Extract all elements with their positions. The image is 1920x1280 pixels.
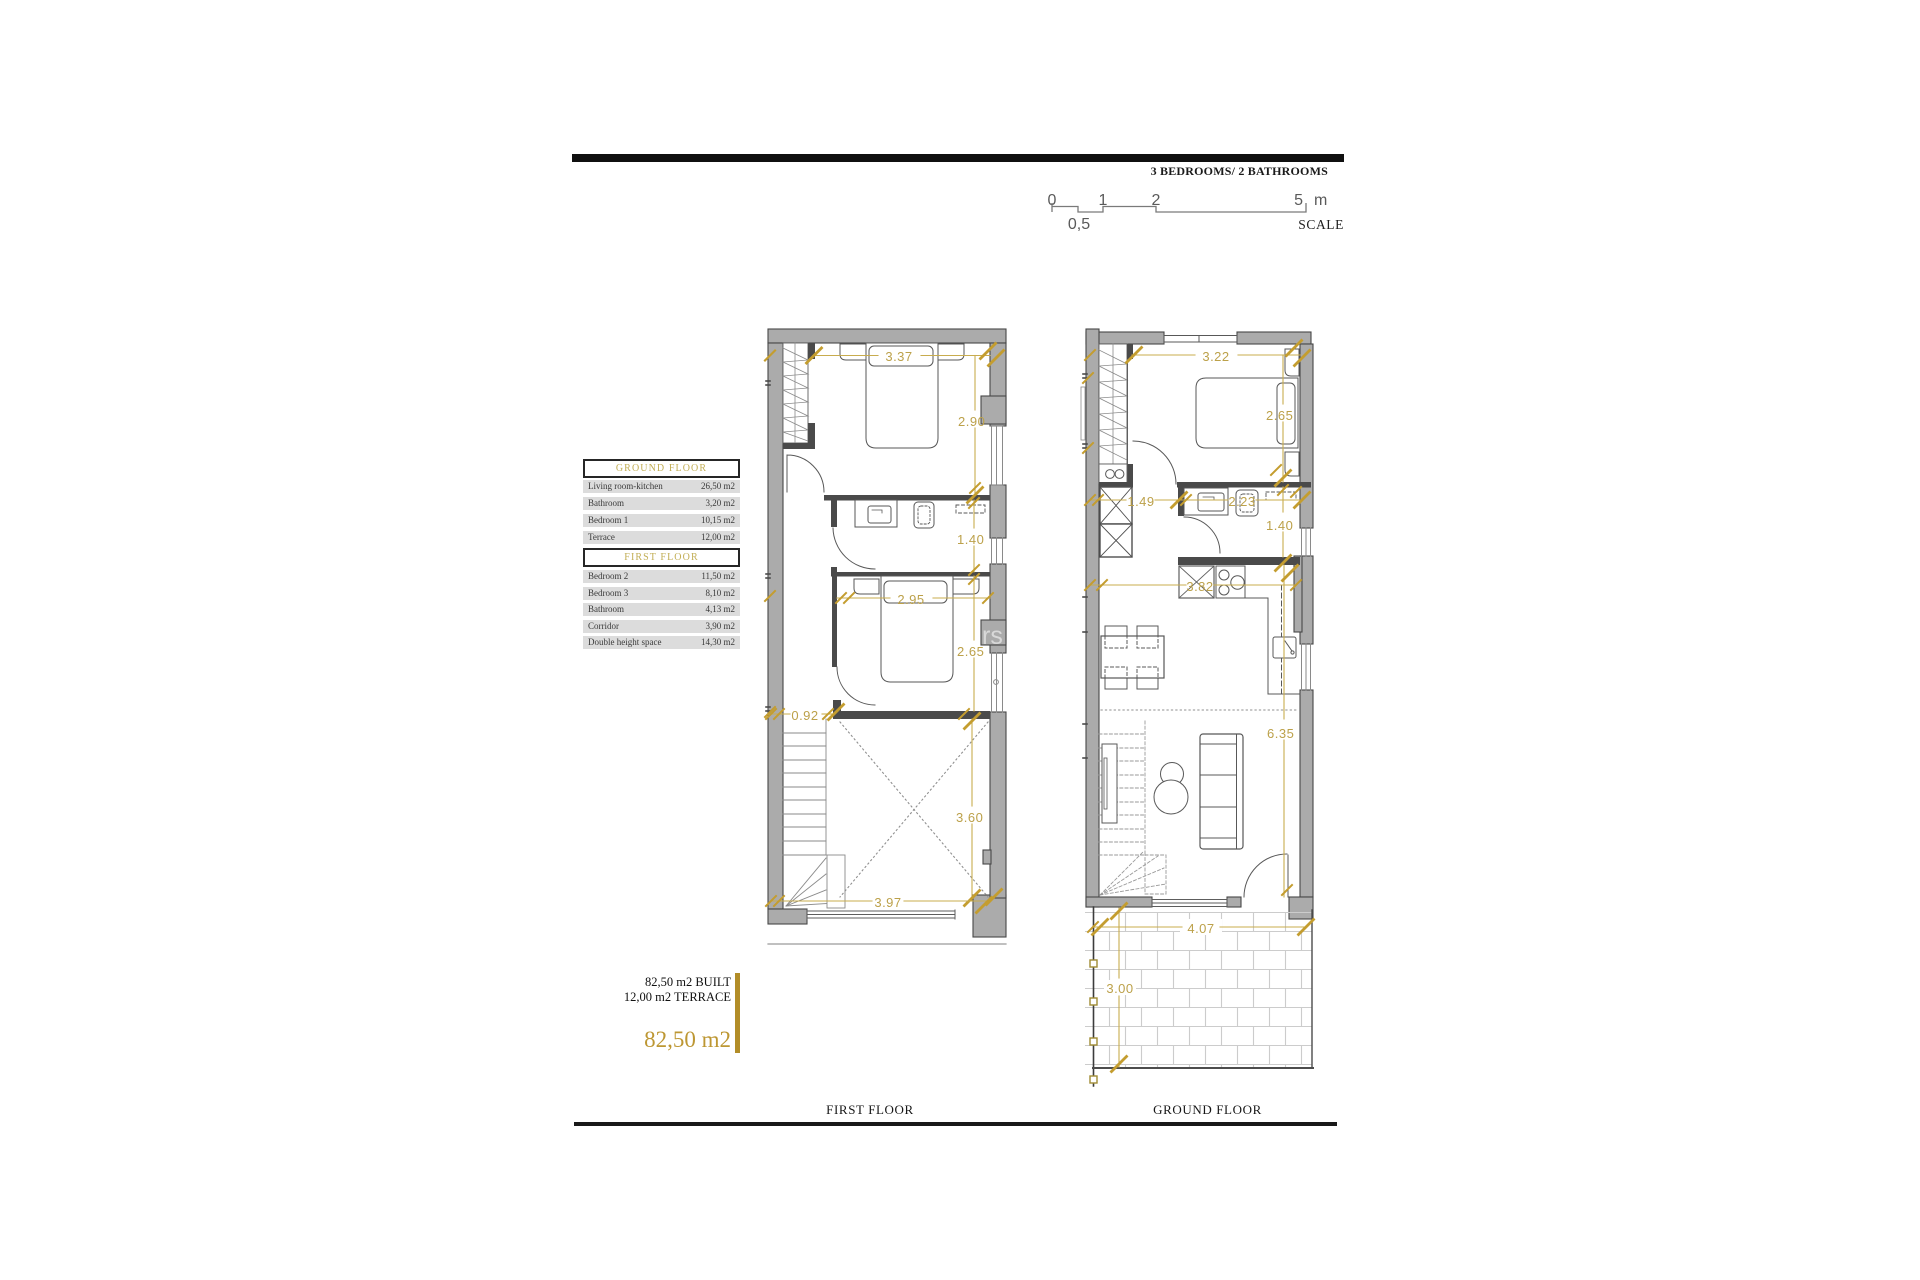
svg-text:m: m bbox=[1314, 192, 1327, 209]
svg-text:0,5: 0,5 bbox=[1068, 216, 1090, 233]
svg-text:3.82: 3.82 bbox=[1186, 579, 1213, 594]
svg-text:3.37: 3.37 bbox=[885, 349, 912, 364]
svg-text:5: 5 bbox=[1294, 192, 1303, 209]
svg-text:2.95: 2.95 bbox=[897, 592, 924, 607]
svg-text:4.07: 4.07 bbox=[1187, 921, 1214, 936]
svg-text:3.97: 3.97 bbox=[874, 895, 901, 910]
svg-text:3.00: 3.00 bbox=[1106, 981, 1133, 996]
svg-text:1.40: 1.40 bbox=[957, 532, 984, 547]
svg-text:1.49: 1.49 bbox=[1127, 494, 1154, 509]
svg-text:1.40: 1.40 bbox=[1266, 518, 1293, 533]
svg-text:0.92: 0.92 bbox=[791, 708, 818, 723]
svg-text:3.60: 3.60 bbox=[956, 810, 983, 825]
svg-text:rs: rs bbox=[982, 622, 1003, 650]
svg-text:2.90: 2.90 bbox=[958, 414, 985, 429]
svg-text:2.65: 2.65 bbox=[1266, 408, 1293, 423]
svg-text:2.23: 2.23 bbox=[1228, 494, 1255, 509]
svg-text:2.65: 2.65 bbox=[957, 644, 984, 659]
svg-text:6.35: 6.35 bbox=[1267, 726, 1294, 741]
svg-text:3.22: 3.22 bbox=[1202, 349, 1229, 364]
